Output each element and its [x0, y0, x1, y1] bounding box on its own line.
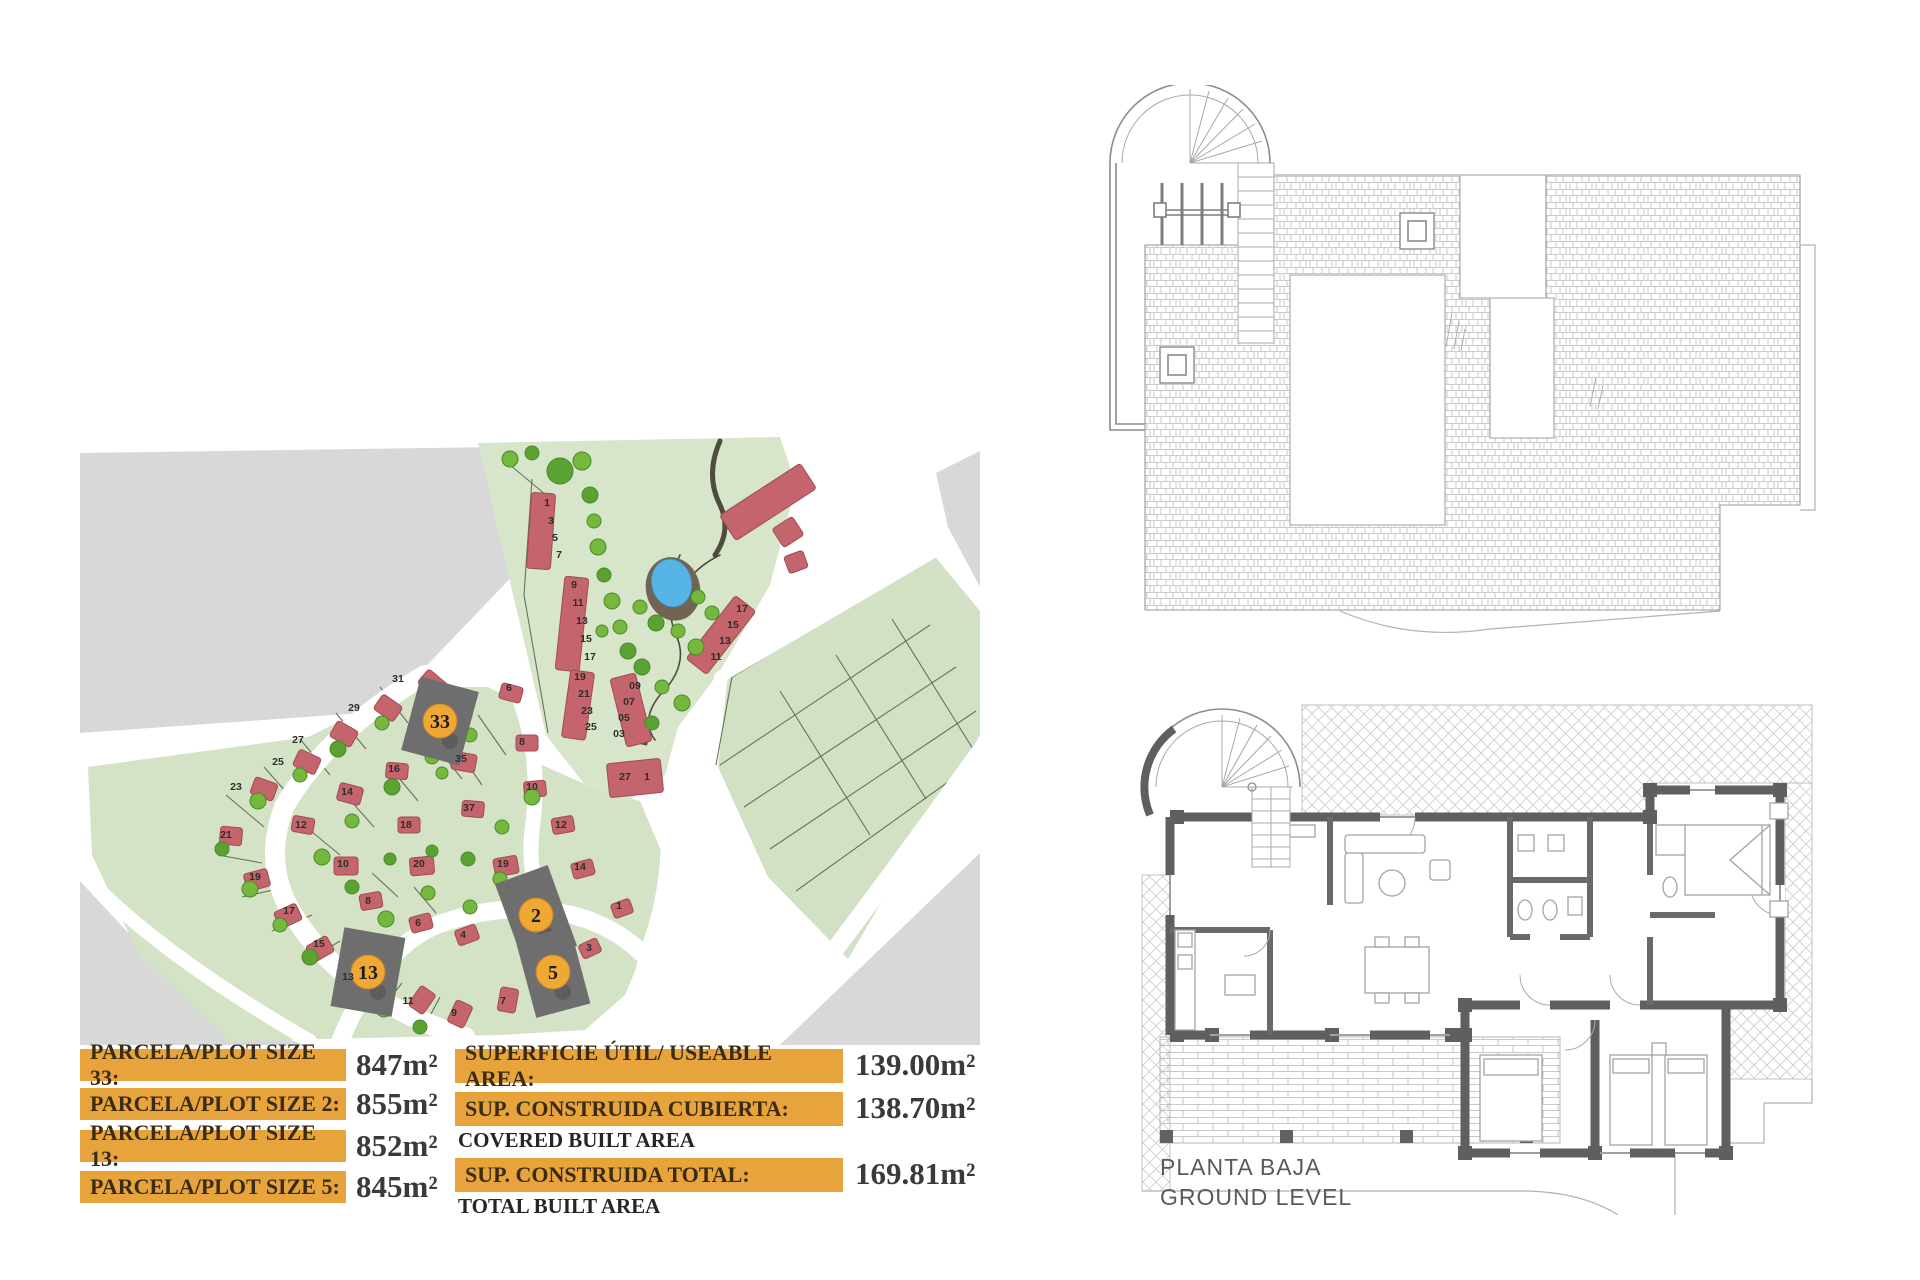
plot-number: 05 — [618, 712, 630, 724]
plot-size-label: PARCELA/PLOT SIZE 2: — [80, 1088, 346, 1120]
plot-number: 25 — [272, 756, 284, 768]
plot-size-value: 845m² — [356, 1169, 438, 1205]
tree-icon — [648, 615, 664, 631]
plot-number: 35 — [455, 753, 467, 765]
tree-icon — [582, 487, 598, 503]
plot-number: 6 — [415, 917, 421, 929]
tree-icon — [573, 452, 591, 470]
plot-number: 19 — [574, 671, 586, 683]
tree-icon — [426, 845, 438, 857]
plot-number: 07 — [623, 696, 635, 708]
house-footprint — [359, 891, 383, 911]
plot-number: 8 — [519, 736, 525, 748]
plot-number: 17 — [283, 905, 295, 917]
tree-icon — [691, 590, 705, 604]
built-area-value: 169.81m² — [855, 1156, 975, 1192]
plot-number: 12 — [295, 819, 307, 831]
plot-number: 27 — [292, 734, 304, 746]
plot-number: 3 — [548, 515, 554, 527]
built-area-sublabel: COVERED BUILT AREA — [458, 1128, 695, 1153]
plot-number: 10 — [337, 858, 349, 870]
tree-icon — [620, 643, 636, 659]
ground-floor-plan: PLANTA BAJA GROUND LEVEL — [1130, 675, 1920, 1215]
plot-size-value: 852m² — [356, 1128, 438, 1164]
tree-icon — [597, 568, 611, 582]
plot-number: 17 — [736, 603, 748, 615]
highlighted-plot-number: 33 — [430, 711, 450, 733]
tree-icon — [655, 680, 669, 694]
plot-size-label: PARCELA/PLOT SIZE 13: — [80, 1130, 346, 1162]
plot-number: 1 — [544, 497, 550, 509]
tree-icon — [633, 600, 647, 614]
tree-icon — [314, 849, 330, 865]
tree-icon — [421, 886, 435, 900]
built-area-sublabel: TOTAL BUILT AREA — [458, 1194, 660, 1219]
plot-number: 14 — [341, 786, 353, 798]
plot-number: 19 — [497, 858, 509, 870]
plot-number: 25 — [585, 721, 597, 733]
plot-number: 19 — [249, 871, 261, 883]
tree-icon — [273, 918, 287, 932]
plot-number: 1 — [616, 900, 622, 912]
tree-icon — [375, 716, 389, 730]
plot-number: 13 — [719, 635, 731, 647]
plot-number: 09 — [629, 680, 641, 692]
plot-number: 21 — [220, 829, 232, 841]
highlighted-plot-number: 13 — [358, 962, 378, 984]
brochure-page: 3321353129272523211917151311976835161412… — [0, 0, 1920, 1280]
plot-number: 7 — [500, 995, 506, 1007]
tree-icon — [604, 593, 620, 609]
tree-icon — [502, 451, 518, 467]
plot-number: 15 — [727, 619, 739, 631]
plot-number: 1 — [644, 771, 650, 783]
plot-number: 20 — [413, 858, 425, 870]
plot-number: 14 — [574, 861, 586, 873]
tree-icon — [547, 458, 573, 484]
tree-icon — [674, 695, 690, 711]
plot-number: 31 — [392, 673, 404, 685]
built-area-label: SUP. CONSTRUIDA TOTAL: — [455, 1158, 843, 1192]
house-footprint — [784, 550, 809, 574]
plot-number: 11 — [710, 651, 721, 663]
tree-icon — [413, 1020, 427, 1034]
plot-number: 9 — [571, 579, 577, 591]
tree-icon — [688, 639, 704, 655]
tree-icon — [242, 881, 258, 897]
plot-number: 16 — [388, 763, 400, 775]
tree-icon — [590, 539, 606, 555]
chimney — [1160, 347, 1194, 383]
tree-icon — [384, 853, 396, 865]
roof-plan-drawing — [1100, 85, 1820, 645]
tree-icon — [613, 620, 627, 634]
tree-icon — [461, 852, 475, 866]
highlighted-plot-number: 2 — [531, 905, 541, 927]
tree-icon — [215, 842, 229, 856]
plot-number: 18 — [400, 819, 412, 831]
plot-size-value: 855m² — [356, 1086, 438, 1122]
tree-icon — [645, 716, 659, 730]
plot-number: 6 — [506, 682, 512, 694]
tree-icon — [345, 814, 359, 828]
roof-plan — [1100, 85, 1820, 645]
tree-icon — [463, 900, 477, 914]
plot-number: 4 — [460, 929, 466, 941]
site-plan: 3321353129272523211917151311976835161412… — [80, 435, 980, 1045]
plot-number: 29 — [348, 702, 360, 714]
plot-number: 21 — [578, 688, 590, 700]
plot-number: 23 — [581, 705, 593, 717]
plot-number: 37 — [463, 802, 475, 814]
plot-number: 17 — [584, 651, 596, 663]
plot-number: 7 — [556, 549, 562, 561]
built-area-label: SUPERFICIE ÚTIL/ USEABLE AREA: — [455, 1049, 843, 1083]
plot-number: 13 — [576, 615, 588, 627]
plan-caption-line2: GROUND LEVEL — [1160, 1184, 1352, 1210]
tree-icon — [378, 911, 394, 927]
built-area-label: SUP. CONSTRUIDA CUBIERTA: — [455, 1092, 843, 1126]
tree-icon — [345, 880, 359, 894]
tree-icon — [330, 741, 346, 757]
built-area-value: 138.70m² — [855, 1090, 975, 1126]
chimney — [1400, 213, 1434, 249]
built-area-value: 139.00m² — [855, 1047, 975, 1083]
tree-icon — [384, 779, 400, 795]
ground-floor-drawing: PLANTA BAJA GROUND LEVEL — [1130, 675, 1920, 1215]
plot-size-value: 847m² — [356, 1047, 438, 1083]
plot-number: 27 — [619, 771, 631, 783]
plot-number: 11 — [572, 597, 583, 609]
house-footprint — [526, 492, 555, 569]
tree-icon — [436, 767, 448, 779]
plot-number: 13 — [342, 971, 354, 983]
tree-icon — [671, 624, 685, 638]
tree-icon — [587, 514, 601, 528]
site-plan-drawing: 3321353129272523211917151311976835161412… — [80, 435, 980, 1045]
tree-icon — [495, 820, 509, 834]
highlighted-plot-number: 5 — [548, 962, 558, 984]
tree-icon — [250, 793, 266, 809]
plot-size-label: PARCELA/PLOT SIZE 5: — [80, 1171, 346, 1203]
tree-icon — [525, 446, 539, 460]
plot-number: 12 — [555, 819, 567, 831]
plot-number: 03 — [613, 728, 625, 740]
plot-number: 8 — [365, 895, 371, 907]
house-footprint — [606, 758, 663, 797]
plot-number: 5 — [552, 532, 558, 544]
plan-caption-line1: PLANTA BAJA — [1160, 1154, 1321, 1180]
tree-icon — [596, 625, 608, 637]
plot-number: 9 — [451, 1007, 457, 1019]
tree-icon — [302, 949, 318, 965]
plot-number: 23 — [230, 781, 242, 793]
plot-number: 15 — [580, 633, 592, 645]
plot-number: 15 — [313, 938, 325, 950]
plot-number: 11 — [402, 995, 413, 1007]
plot-number: 3 — [586, 942, 592, 954]
tree-icon — [634, 659, 650, 675]
tree-icon — [293, 768, 307, 782]
plot-size-label: PARCELA/PLOT SIZE 33: — [80, 1049, 346, 1081]
pergola — [1154, 183, 1240, 245]
legend: PARCELA/PLOT SIZE 33:847m²PARCELA/PLOT S… — [0, 1040, 1100, 1240]
plot-number: 10 — [526, 781, 538, 793]
tree-icon — [705, 606, 719, 620]
